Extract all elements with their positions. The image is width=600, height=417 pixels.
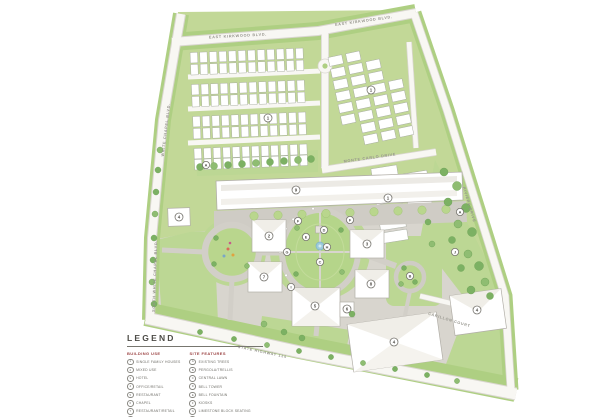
legend-label: SINGLE FAMILY HOUSES <box>136 360 180 364</box>
legend-site-features-header: SITE FEATURES <box>189 351 250 356</box>
legend-item: DBELL TOWER <box>189 383 250 390</box>
legend-building-use-items: 1SINGLE FAMILY HOUSES2MIXED USE3HOTEL4OF… <box>127 359 180 417</box>
svg-text:A: A <box>205 164 208 168</box>
building-marker-2: 2 <box>265 232 273 240</box>
svg-text:B: B <box>409 275 412 279</box>
legend-key: 3 <box>127 375 134 382</box>
building-marker-1: 1 <box>367 86 375 94</box>
legend-key: 7 <box>127 408 134 415</box>
feature-marker-I: I <box>287 283 294 290</box>
svg-text:E: E <box>305 236 308 240</box>
water-feature <box>316 242 324 250</box>
legend-label: OFFICE/RETAIL <box>136 385 164 389</box>
legend-item: FKIOSKS <box>189 400 250 407</box>
svg-text:D: D <box>323 229 326 233</box>
site-plan-map: EAST KIRKWOOD BLVD.EAST KIRKWOOD BLVD.WH… <box>0 0 600 417</box>
legend-key: B <box>189 367 196 374</box>
legend-item: EBELL FOUNTAIN <box>189 392 250 399</box>
legend-label: CENTRAL LAWN <box>199 376 228 380</box>
legend-item: 7RESTAURANT/RETAIL <box>127 408 180 415</box>
central-lawn <box>282 210 358 294</box>
feature-marker-F: F <box>346 216 353 223</box>
legend-key: E <box>189 392 196 399</box>
legend-key: C <box>189 375 196 382</box>
svg-text:I: I <box>290 286 291 290</box>
legend-building-use-header: BUILDING USE <box>127 351 180 356</box>
legend-item: GLIMESTONE BLOCK SEATING <box>189 408 250 415</box>
legend-label: CHAPEL <box>136 401 151 405</box>
legend-label: PERGOLA/TRELLIS <box>199 368 233 372</box>
building-marker-9: 9 <box>292 186 300 194</box>
legend-item: CCENTRAL LAWN <box>189 375 250 382</box>
legend-label: HOTEL <box>136 376 148 380</box>
feature-marker-A: A <box>202 161 209 168</box>
legend-item: 2MIXED USE <box>127 367 180 374</box>
legend-site-features: SITE FEATURES AEXISTING TREESBPERGOLA/TR… <box>189 351 250 417</box>
legend-label: BELL TOWER <box>199 385 223 389</box>
svg-text:A: A <box>459 211 462 215</box>
feature-marker-H: H <box>323 243 330 250</box>
feature-marker-D: D <box>320 226 327 233</box>
building-marker-1: 1 <box>264 114 272 122</box>
legend-site-features-items: AEXISTING TREESBPERGOLA/TRELLISCCENTRAL … <box>189 359 250 417</box>
svg-text:H: H <box>326 246 329 250</box>
svg-text:C: C <box>319 261 322 265</box>
legend-item: 5RESTAURANT <box>127 392 180 399</box>
legend-key: 4 <box>127 383 134 390</box>
legend-item: AEXISTING TREES <box>189 359 250 366</box>
building-marker-3: 3 <box>363 240 371 248</box>
svg-text:J: J <box>454 251 456 255</box>
legend-key: F <box>189 400 196 407</box>
legend-item: BPERGOLA/TRELLIS <box>189 367 250 374</box>
building-marker-4: 4 <box>390 338 398 346</box>
legend-label: BELL FOUNTAIN <box>199 393 228 397</box>
legend-label: EXISTING TREES <box>199 360 230 364</box>
legend-label: RESTAURANT <box>136 393 161 397</box>
legend-item: 3HOTEL <box>127 375 180 382</box>
feature-marker-A: A <box>456 208 463 215</box>
feature-marker-E: E <box>302 233 309 240</box>
legend-building-use: BUILDING USE 1SINGLE FAMILY HOUSES2MIXED… <box>127 351 180 417</box>
legend-key: 1 <box>127 359 134 366</box>
site-plan-page: EAST KIRKWOOD BLVD.EAST KIRKWOOD BLVD.WH… <box>0 0 600 417</box>
legend-key: A <box>189 359 196 366</box>
feature-marker-G: G <box>283 248 290 255</box>
legend-key: D <box>189 383 196 390</box>
legend-item: 4OFFICE/RETAIL <box>127 383 180 390</box>
legend: LEGEND BUILDING USE 1SINGLE FAMILY HOUSE… <box>127 333 263 417</box>
building-marker-1: 1 <box>384 194 392 202</box>
feature-marker-F: F <box>294 217 301 224</box>
legend-label: KIOSKS <box>199 401 213 405</box>
building-marker-6: 6 <box>343 305 351 313</box>
feature-marker-B: B <box>406 272 413 279</box>
building-marker-4: 4 <box>175 213 183 221</box>
building-marker-8: 8 <box>367 280 375 288</box>
legend-label: RESTAURANT/RETAIL <box>136 409 175 413</box>
building-marker-4: 4 <box>473 306 481 314</box>
building-marker-5: 5 <box>311 302 319 310</box>
feature-marker-J: J <box>451 248 458 255</box>
legend-item: 1SINGLE FAMILY HOUSES <box>127 359 180 366</box>
legend-label: LIMESTONE BLOCK SEATING <box>199 409 251 413</box>
building-marker-7: 7 <box>260 273 268 281</box>
feature-marker-C: C <box>316 258 323 265</box>
legend-key: 6 <box>127 400 134 407</box>
legend-label: MIXED USE <box>136 368 156 372</box>
svg-text:G: G <box>286 251 289 255</box>
legend-title: LEGEND <box>127 333 263 347</box>
legend-key: 5 <box>127 392 134 399</box>
legend-item: 6CHAPEL <box>127 400 180 407</box>
legend-key: G <box>189 408 196 415</box>
legend-key: 2 <box>127 367 134 374</box>
